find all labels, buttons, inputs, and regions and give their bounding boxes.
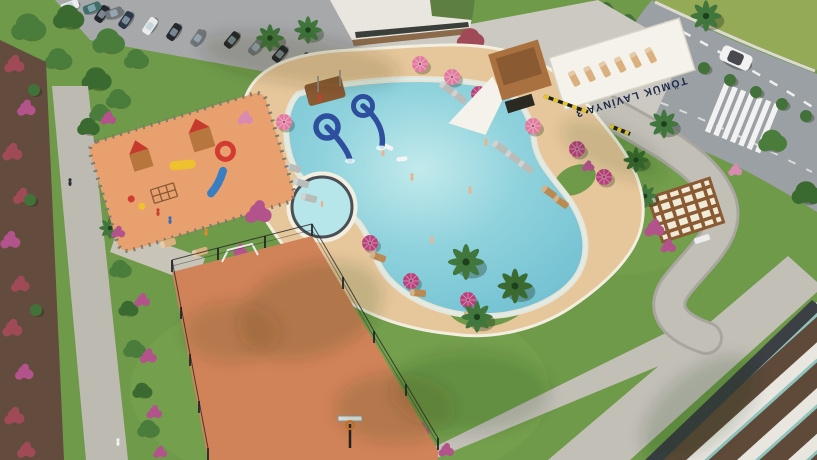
person — [68, 178, 71, 186]
child — [204, 228, 207, 236]
scene-canvas: TÖMÜK LAVİNYA 3 — [0, 0, 817, 460]
swimmer — [468, 186, 471, 194]
sun-lounger — [410, 289, 427, 297]
person — [484, 138, 487, 146]
swimmer — [410, 173, 413, 181]
swimmer — [430, 236, 433, 244]
child — [156, 208, 159, 216]
person — [116, 438, 119, 446]
child-swimmer — [321, 201, 324, 207]
child — [168, 216, 171, 224]
aerial-render: TÖMÜK LAVİNYA 3 — [0, 0, 817, 460]
person — [318, 94, 321, 102]
